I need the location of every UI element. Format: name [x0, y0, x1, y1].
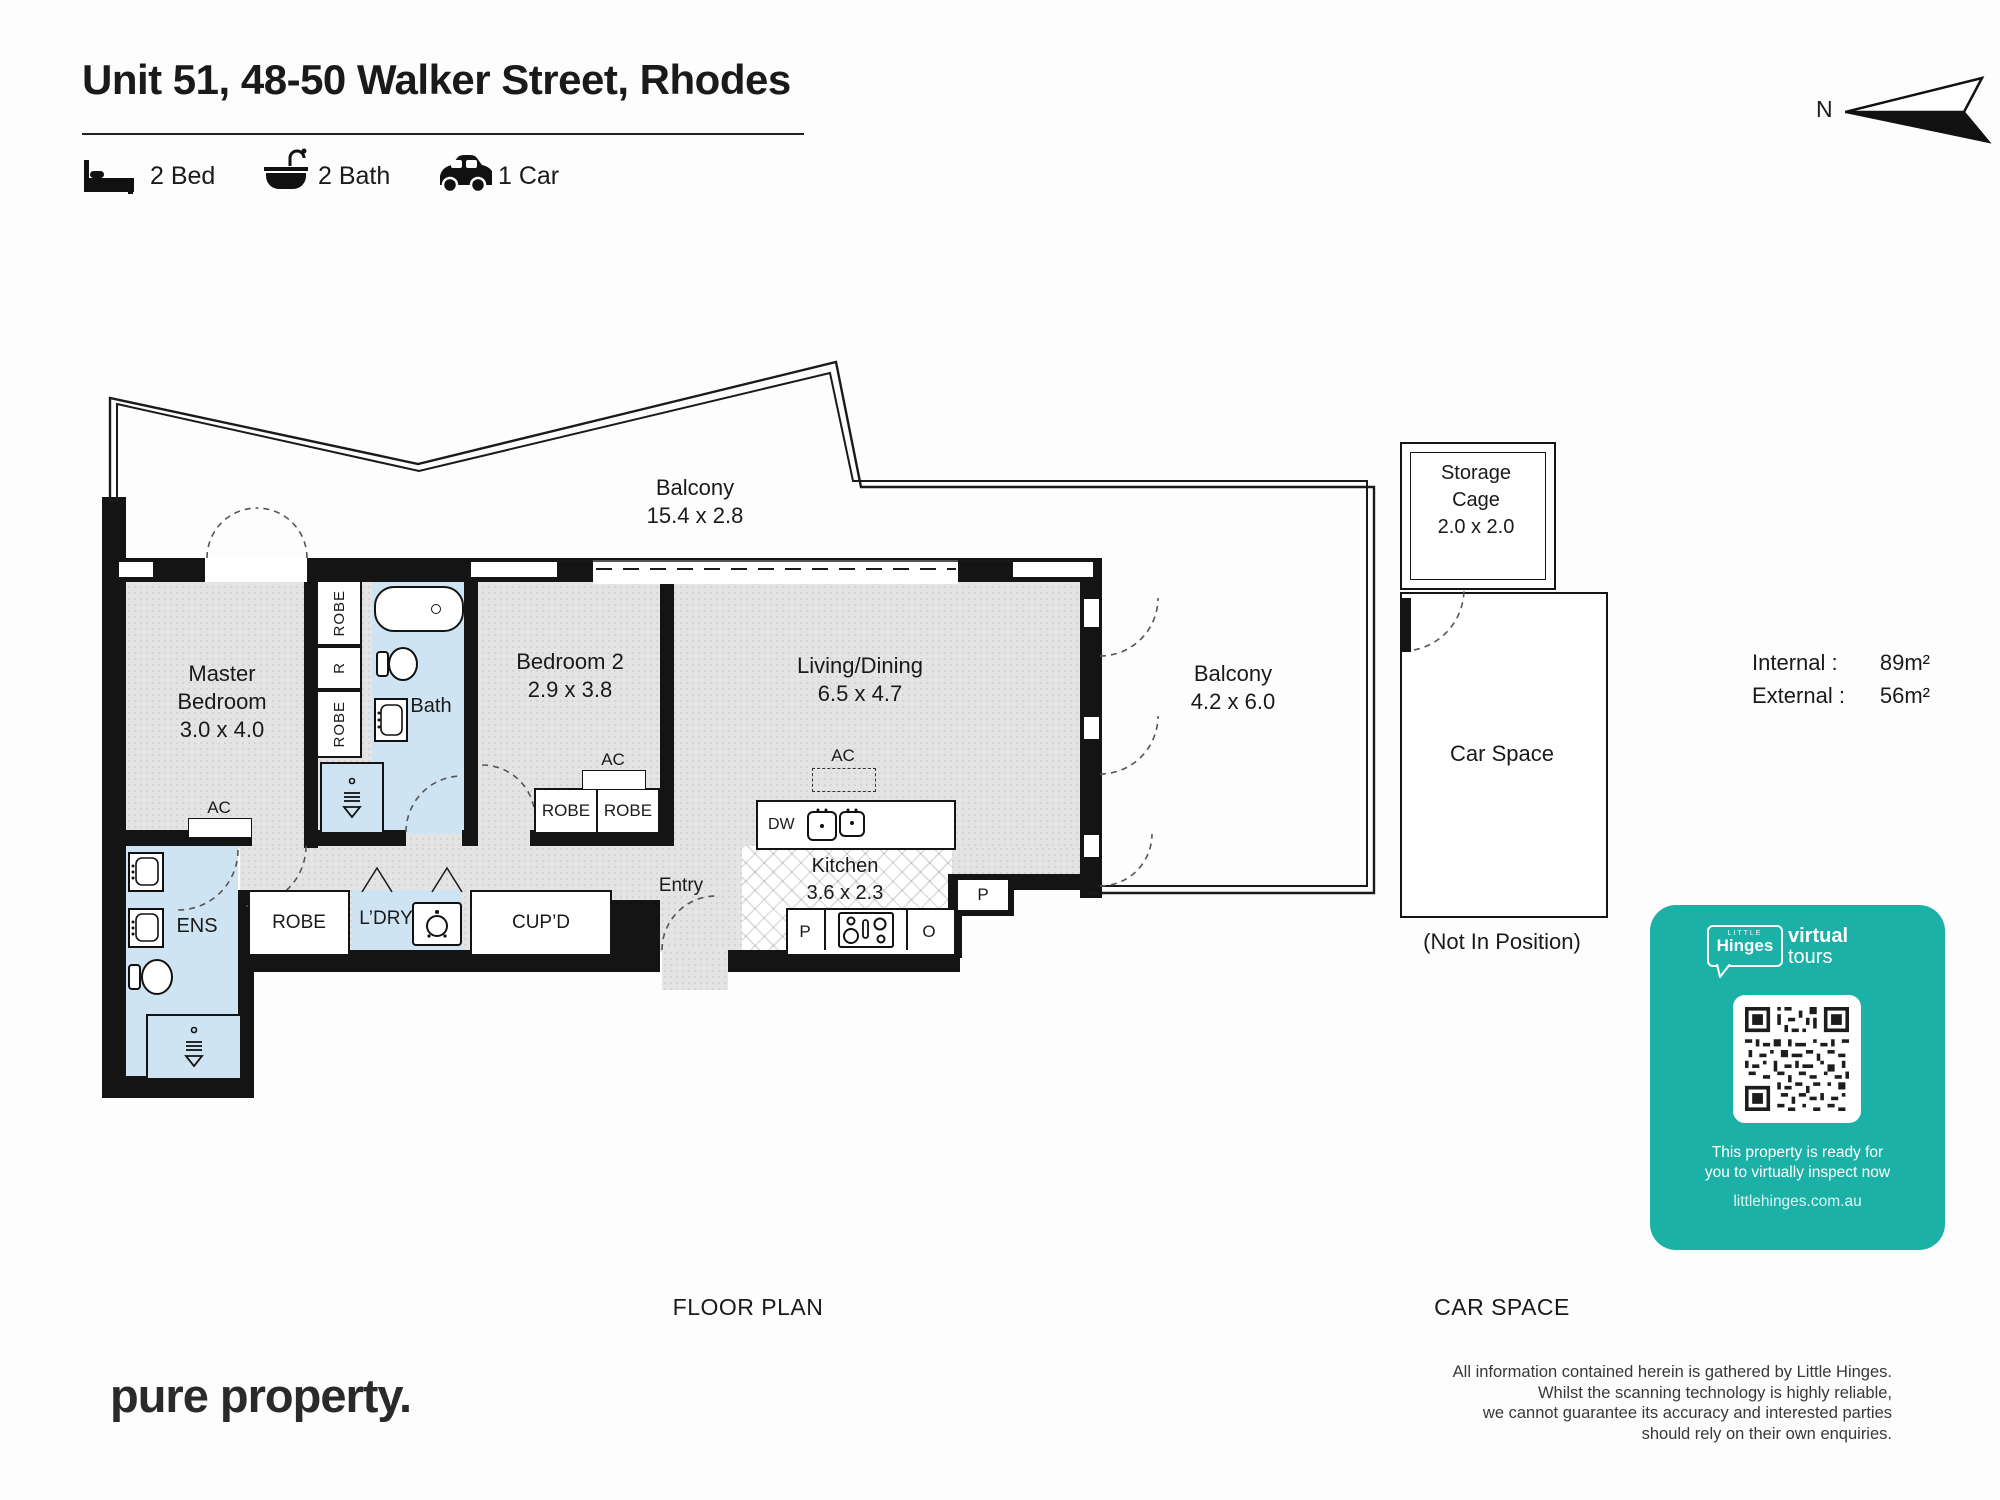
bedroom2-robe-2: ROBE	[596, 788, 660, 834]
balcony-door-2	[1083, 716, 1100, 740]
bath-toilet-icon	[376, 644, 420, 684]
balcony-door-3	[1083, 834, 1100, 858]
car-space-label: Car Space	[1400, 740, 1604, 768]
ens-shower	[146, 1014, 242, 1080]
ens-sink-1-icon	[128, 852, 164, 892]
ac-unit-living	[812, 768, 876, 792]
robe-cabinet-2: R	[316, 646, 362, 690]
entry-label: Entry	[646, 872, 716, 900]
car-space-note: (Not In Position)	[1352, 928, 1652, 956]
master-bedroom-label: Master Bedroom 3.0 x 4.0	[122, 660, 322, 744]
pantry2-box: P	[956, 878, 1010, 912]
balcony-right-label: Balcony 4.2 x 6.0	[1100, 660, 1366, 716]
little-hinges-logo: LITTLE Hinges	[1707, 925, 1783, 967]
page-title: Unit 51, 48-50 Walker Street, Rhodes	[82, 56, 791, 104]
bath-bedroom2-wall	[464, 558, 478, 834]
bathtub-icon	[374, 586, 464, 632]
pantry-label: P	[786, 918, 824, 946]
cupboard-box: CUP’D	[470, 890, 612, 956]
promo-text: This property is ready for you to virtua…	[1650, 1143, 1945, 1183]
oven-label: O	[906, 918, 952, 946]
bedroom2-window	[470, 561, 558, 578]
external-area-value: 56m²	[1880, 683, 1930, 709]
living-window	[1012, 561, 1094, 578]
master-window	[118, 561, 154, 578]
west-wall	[102, 497, 126, 1097]
balcony-door-1	[1083, 598, 1100, 628]
entry-floor	[662, 950, 728, 990]
ac-label-living: AC	[812, 742, 874, 770]
area-summary: Internal : 89m² External : 56m²	[1752, 650, 1930, 709]
virtual-tours-wordmark: virtual tours	[1788, 925, 1848, 969]
bedroom2-living-wall	[660, 558, 674, 834]
logo-hinges-text: Hinges	[1709, 936, 1781, 956]
external-area-row: External : 56m²	[1752, 683, 1930, 709]
shower-icon	[177, 1024, 211, 1070]
hall-south-wall-b	[608, 900, 660, 972]
double-sink-icon	[806, 808, 868, 842]
virtual-tour-panel: LITTLE Hinges virtual tours	[1650, 905, 1945, 1250]
bath-shower	[320, 762, 384, 834]
hall-robe-box: ROBE	[248, 890, 350, 956]
disclaimer: All information contained herein is gath…	[1272, 1362, 1892, 1444]
promo-url: littlehinges.com.au	[1650, 1193, 1945, 1211]
shower-icon	[335, 775, 369, 821]
floor-plan-caption: FLOOR PLAN	[598, 1294, 898, 1321]
dishwasher-label: DW	[768, 816, 795, 834]
robe-cabinet-1: ROBE	[316, 580, 362, 646]
ens-toilet-icon	[128, 956, 176, 998]
qr-code-box	[1733, 995, 1861, 1123]
car-count: 1 Car	[498, 162, 559, 191]
internal-area-row: Internal : 89m²	[1752, 650, 1930, 676]
north-label: N	[1816, 96, 1833, 123]
bedroom2-label: Bedroom 2 2.9 x 3.8	[478, 648, 662, 704]
agency-logo: pure property.	[110, 1368, 411, 1423]
internal-area-value: 89m²	[1880, 650, 1930, 676]
internal-area-label: Internal :	[1752, 650, 1838, 676]
external-area-label: External :	[1752, 683, 1845, 709]
north-arrow-icon	[1845, 76, 1995, 146]
bath-icon	[262, 148, 310, 196]
qr-code	[1745, 1007, 1849, 1111]
virtual-text: virtual	[1788, 925, 1848, 948]
speech-bubble-tail-icon	[1715, 963, 1733, 979]
laundry-label: L’DRY	[350, 905, 422, 933]
bed-count: 2 Bed	[150, 162, 215, 191]
robe-cabinet-3: ROBE	[316, 690, 362, 758]
bed-icon	[82, 158, 136, 196]
ens-label: ENS	[162, 912, 232, 940]
living-label: Living/Dining 6.5 x 4.7	[730, 652, 990, 708]
bath-label: Bath	[398, 692, 464, 720]
bedroom2-robe-1: ROBE	[534, 788, 598, 834]
living-sliding-door-opening	[593, 558, 958, 584]
kitchen-label: Kitchen 3.6 x 2.3	[745, 853, 945, 907]
ac-label-bedroom2: AC	[582, 746, 644, 774]
floorplan-page: { "header": { "title": "Unit 51, 48-50 W…	[0, 0, 2000, 1500]
balcony-top-label: Balcony 15.4 x 2.8	[560, 474, 830, 530]
car-space-caption: CAR SPACE	[1352, 1294, 1652, 1321]
ens-sink-2-icon	[128, 908, 164, 948]
master-balcony-door-opening	[205, 558, 307, 582]
bench-divider-1	[824, 910, 826, 950]
car-icon	[436, 152, 492, 196]
title-underline	[82, 133, 804, 135]
storage-cage-label: Storage Cage 2.0 x 2.0	[1400, 460, 1552, 541]
cooktop-icon	[838, 912, 894, 948]
bath-count: 2 Bath	[318, 162, 390, 191]
kitchen-island: DW	[756, 800, 956, 850]
ac-label-master: AC	[188, 794, 250, 822]
tours-text: tours	[1788, 946, 1848, 969]
bathtub-drain	[431, 604, 441, 614]
